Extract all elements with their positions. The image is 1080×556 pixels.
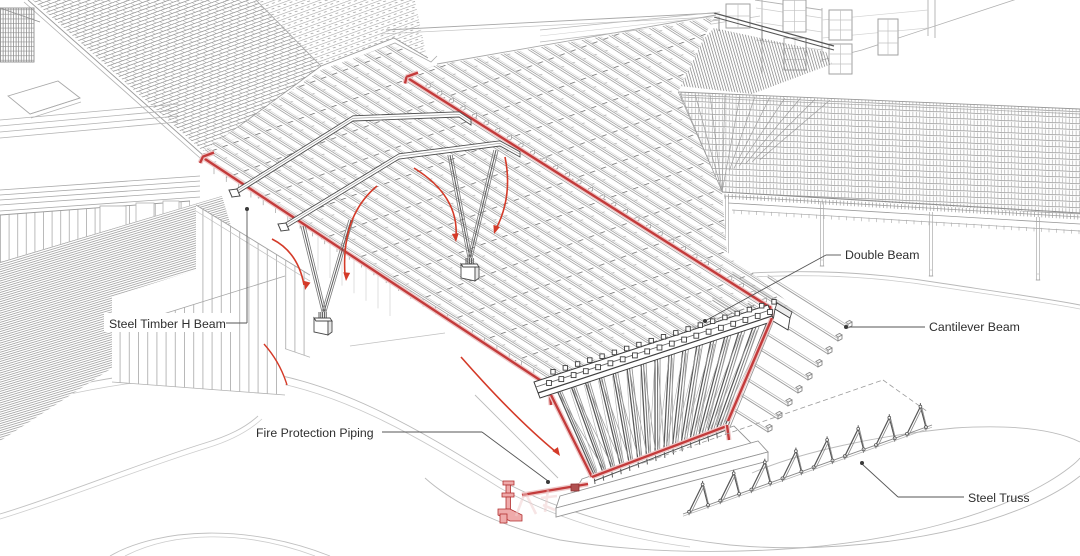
svg-text:Double Beam: Double Beam xyxy=(845,248,920,262)
svg-text:Steel Timber H Beam: Steel Timber H Beam xyxy=(109,317,226,331)
svg-text:Cantilever Beam: Cantilever Beam xyxy=(929,320,1020,334)
svg-text:Fire Protection Piping: Fire Protection Piping xyxy=(256,426,374,440)
svg-text:Steel Truss: Steel Truss xyxy=(968,491,1030,505)
